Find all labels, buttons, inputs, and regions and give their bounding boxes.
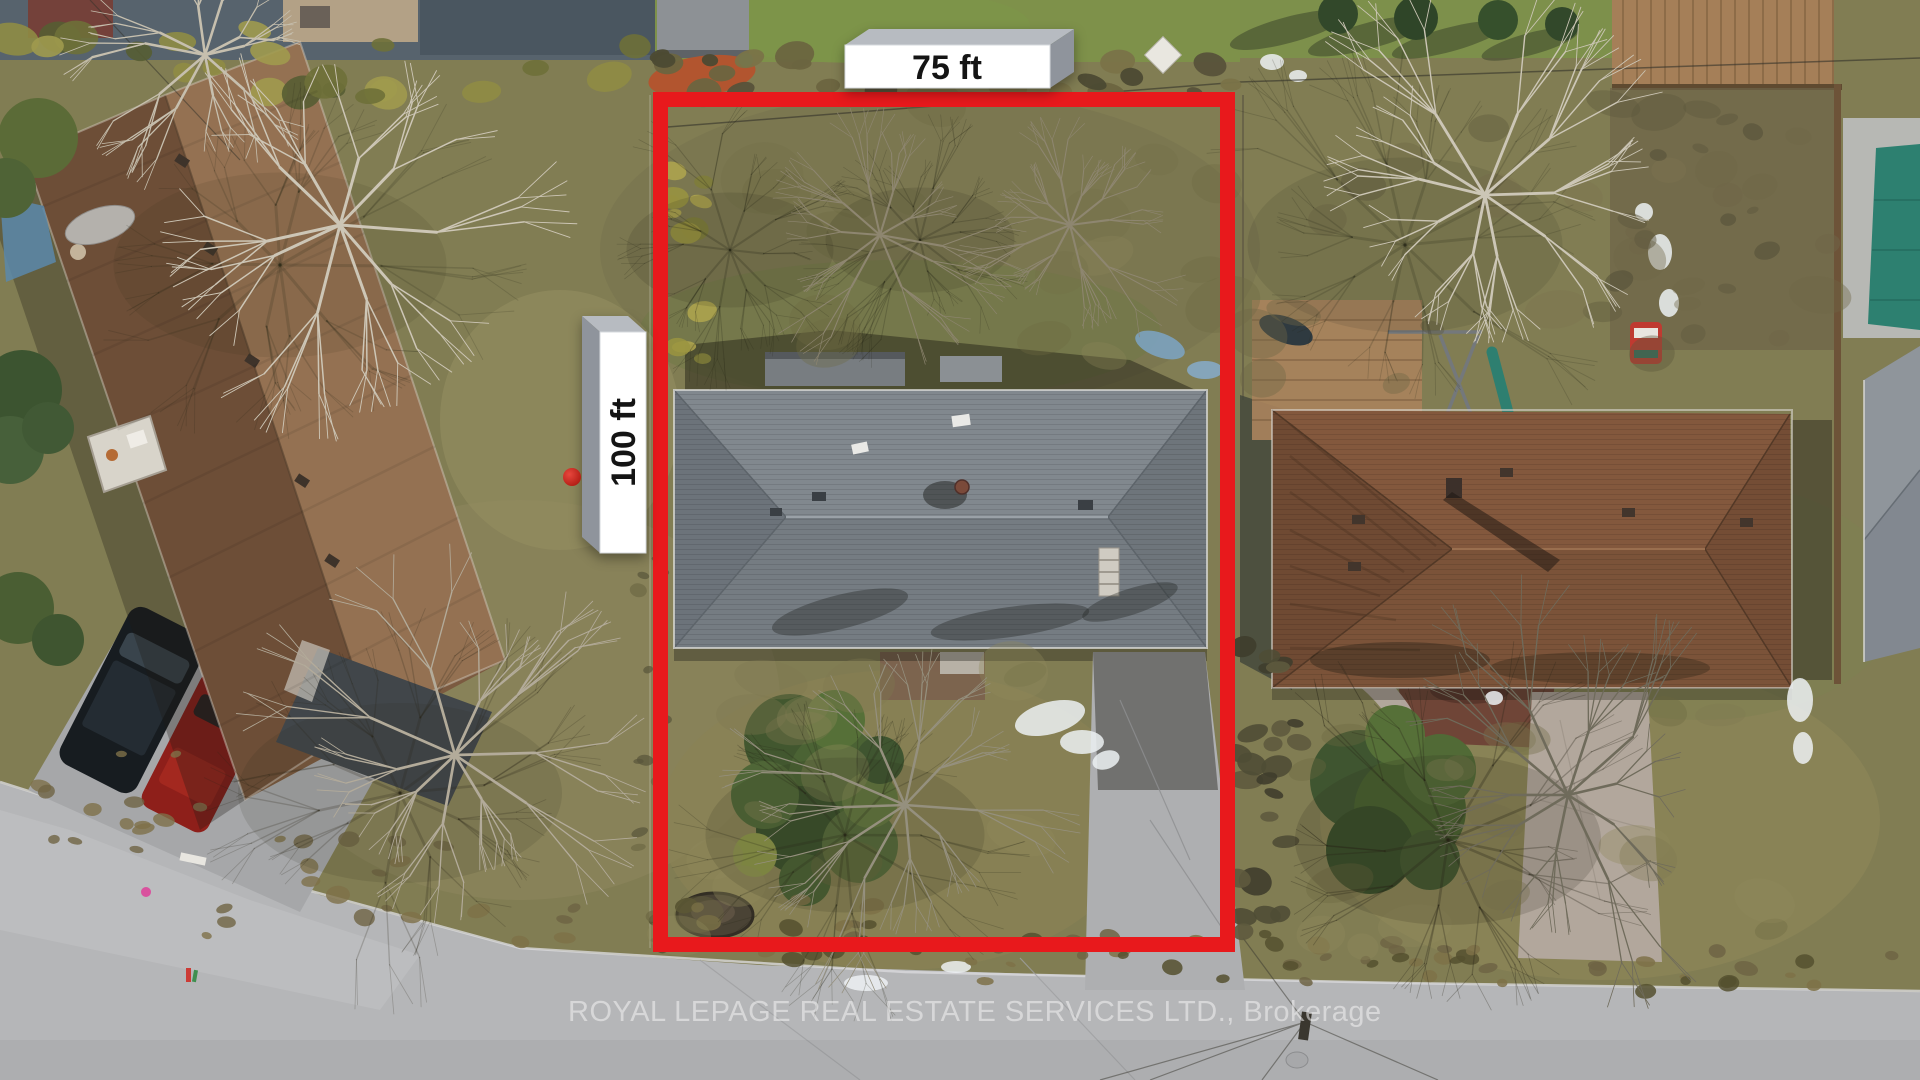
depth-dimension-label: 100 ft (576, 314, 666, 576)
label-top-bevel (845, 29, 1074, 45)
far-right-roof (1864, 346, 1920, 662)
label-side-bevel (582, 316, 600, 553)
property-boundary (653, 92, 1235, 952)
brokerage-watermark: ROYAL LEPAGE REAL ESTATE SERVICES LTD., … (568, 996, 1368, 1029)
red-marker-ball (563, 468, 581, 486)
width-label-text: 75 ft (912, 49, 982, 87)
aerial-photo: 75 ft 100 ft ROYAL LEPAGE REAL ESTATE SE… (0, 0, 1920, 1080)
neighbor-pool (1843, 118, 1920, 338)
width-dimension-label: 75 ft (830, 21, 1090, 101)
wood-fence (1834, 84, 1841, 684)
right-neighbor-house-roof (1272, 410, 1792, 700)
depth-label-text: 100 ft (605, 398, 643, 487)
pergola-deck (1612, 0, 1842, 90)
manhole-cover (1286, 1052, 1308, 1068)
